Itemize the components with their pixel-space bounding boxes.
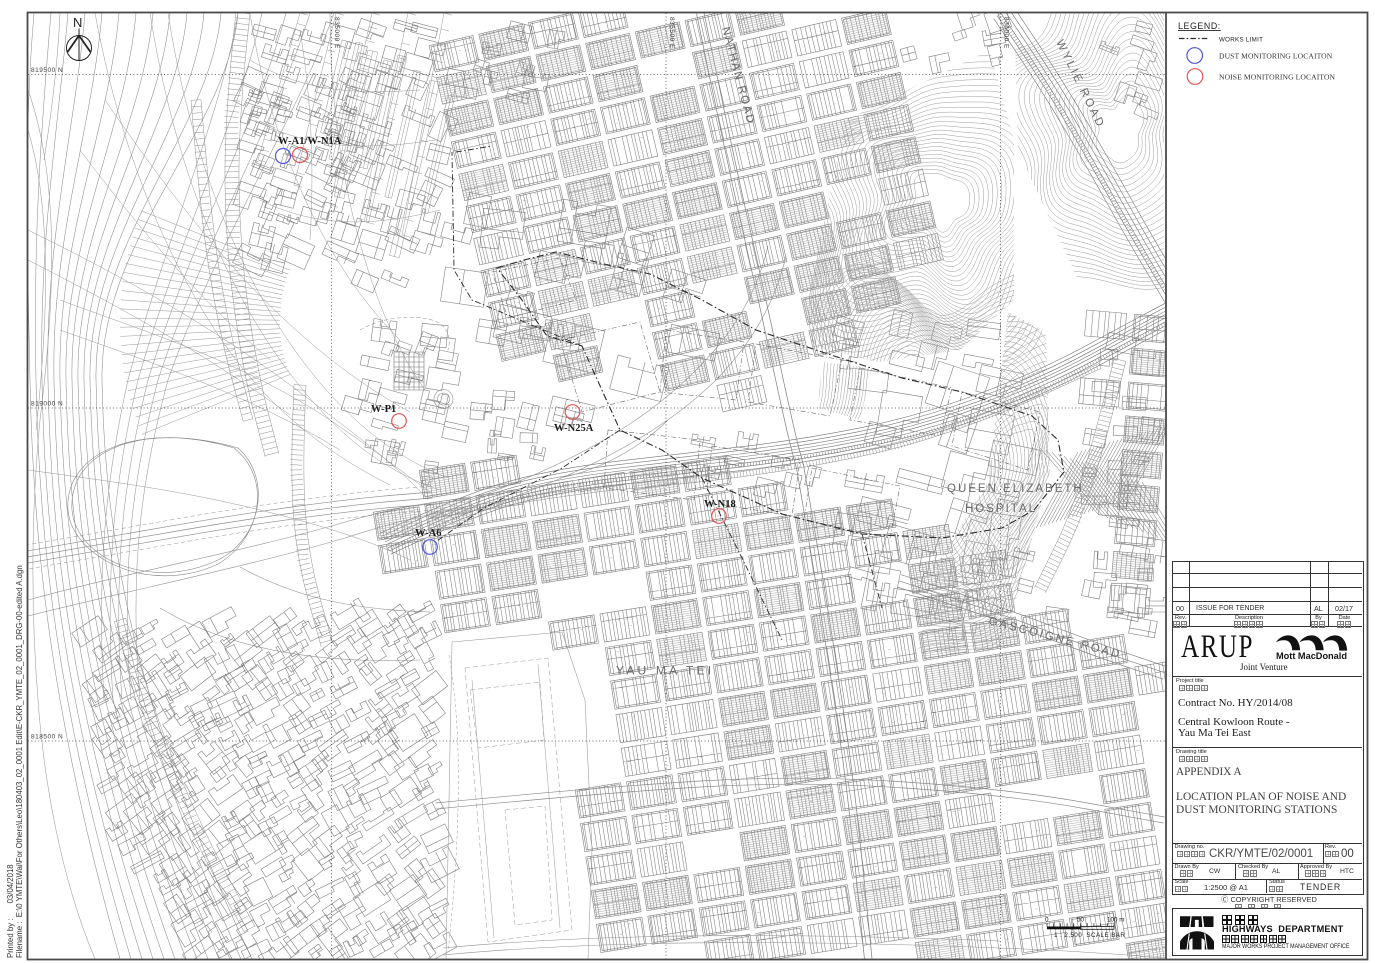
svg-text:QUEEN ELIZABETH: QUEEN ELIZABETH [947,483,1084,495]
svg-text:W-P1: W-P1 [371,404,396,415]
svg-text:DUST MONITORING LOCAITON: DUST MONITORING LOCAITON [1219,52,1333,61]
svg-text:819500 N: 819500 N [31,67,63,74]
svg-text:Filename : E:\0 YMTE\Wai\For: Filename : E:\0 YMTE\Wai\For Others\Leo\… [15,565,24,958]
svg-text:835500 E: 835500 E [668,17,675,49]
svg-text:HOSPITAL: HOSPITAL [965,503,1037,515]
svg-text:835000 E: 835000 E [333,17,340,49]
svg-text:W-A1/W-N1A: W-A1/W-N1A [278,136,342,147]
svg-text:1 : 2,500 SCALE BAR: 1 : 2,500 SCALE BAR [1054,932,1125,939]
svg-text:NATHAN ROAD: NATHAN ROAD [719,26,757,126]
svg-text:LEGEND:: LEGEND: [1178,21,1221,31]
svg-text:100 m: 100 m [1107,917,1125,924]
svg-text:836000 E: 836000 E [1003,17,1010,49]
svg-text:N: N [73,15,82,30]
svg-text:819000 N: 819000 N [31,401,63,408]
svg-text:YAU MA TEI: YAU MA TEI [616,664,714,678]
svg-text:W-N18: W-N18 [704,499,736,510]
svg-text:Printed by : 03/04/2018: Printed by : 03/04/2018 [6,864,15,958]
svg-text:WORKS LIMIT: WORKS LIMIT [1219,37,1263,44]
svg-text:818500 N: 818500 N [31,734,63,741]
svg-text:NOISE MONITORING LOCAITON: NOISE MONITORING LOCAITON [1219,73,1336,82]
svg-text:0: 0 [1045,917,1049,924]
svg-text:W-N25A: W-N25A [554,423,594,434]
svg-text:50: 50 [1077,917,1085,924]
svg-text:W-A6: W-A6 [415,528,441,539]
